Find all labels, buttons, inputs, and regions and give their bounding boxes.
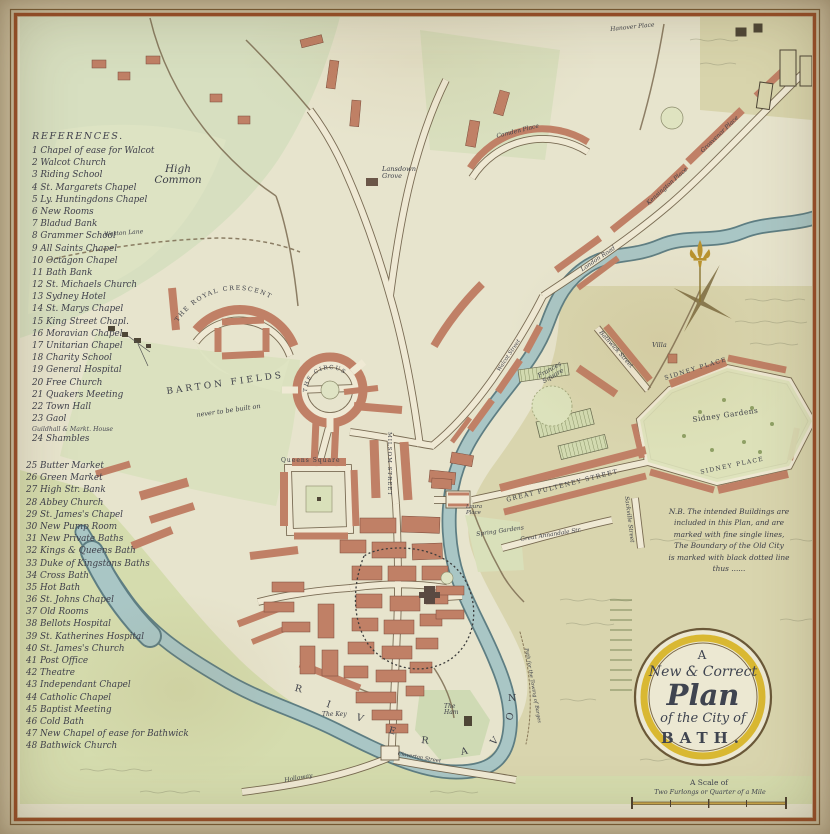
reference-item: 6 New Rooms — [32, 207, 154, 219]
reference-item: 47 New Chapel of ease for Bathwick — [26, 729, 189, 741]
references-list-1: REFERENCES. 1 Chapel of ease for Walcot … — [32, 131, 154, 446]
reference-item: 35 Hot Bath — [26, 583, 189, 595]
reference-item: 15 King Street Chapl. — [32, 317, 154, 329]
reference-item: 26 Green Market — [26, 473, 189, 485]
reference-item: 22 Town Hall — [32, 402, 154, 414]
reference-item: 25 Butter Market — [26, 461, 189, 473]
reference-item: 24 Shambles — [32, 434, 154, 446]
reference-item: 43 Independant Chapel — [26, 680, 189, 692]
reference-item: 2 Walcot Church — [32, 158, 154, 170]
reference-item: 28 Abbey Church — [26, 498, 189, 510]
grosvenor-garden — [661, 107, 683, 129]
references-title: REFERENCES. — [32, 131, 154, 146]
reference-item: 3 Riding School — [32, 170, 154, 182]
old-bridge — [381, 746, 399, 760]
reference-item: 4 St. Margarets Chapel — [32, 183, 154, 195]
reference-item: 20 Free Church — [32, 378, 154, 390]
queen-square-obelisk — [317, 497, 321, 501]
reference-item: 37 Old Rooms — [26, 607, 189, 619]
reference-item: 32 Kings & Queens Bath — [26, 546, 189, 558]
reference-item: 11 Bath Bank — [32, 268, 154, 280]
reference-item: 36 St. Johns Chapel — [26, 595, 189, 607]
reference-item: 40 St. James's Church — [26, 644, 189, 656]
reference-item: 44 Catholic Chapel — [26, 693, 189, 705]
reference-item: 33 Duke of Kingstons Baths — [26, 559, 189, 571]
reference-item: 5 Ly. Huntingdons Chapel — [32, 195, 154, 207]
references-list-2: 25 Butter Market 26 Green Market 27 High… — [26, 461, 189, 754]
reference-item: 46 Cold Bath — [26, 717, 189, 729]
reference-item: 13 Sydney Hotel — [32, 292, 154, 304]
reference-item: 9 All Saints Chapel — [32, 244, 154, 256]
reference-item: 34 Cross Bath — [26, 571, 189, 583]
reference-item: 27 High Str. Bank — [26, 485, 189, 497]
reference-item: 10 Octagon Chapel — [32, 256, 154, 268]
reference-item: 41 Post Office — [26, 656, 189, 668]
orange-grove — [441, 572, 453, 584]
milsom-west — [374, 440, 376, 498]
reference-item: 19 General Hospital — [32, 365, 154, 377]
ham-house — [464, 716, 472, 726]
reference-item: 23 Gaol — [32, 414, 154, 426]
circus-garden — [321, 381, 339, 399]
reference-item: 30 New Pump Room — [26, 522, 189, 534]
reference-item: 48 Bathwick Church — [26, 741, 189, 753]
cartouche-ring — [635, 629, 771, 765]
reference-item: 16 Moravian Chapel — [32, 329, 154, 341]
reference-item: 18 Charity School — [32, 353, 154, 365]
reference-item: 14 St. Marys Chapel — [32, 304, 154, 316]
reference-item: 21 Quakers Meeting — [32, 390, 154, 402]
reference-item-note: Guildhall & Markt. House — [32, 426, 154, 434]
reference-item: 39 St. Katherines Hospital — [26, 632, 189, 644]
reference-item: 8 Grammer School — [32, 231, 154, 243]
reference-item: 45 Baptist Meeting — [26, 705, 189, 717]
reference-item: 7 Bladud Bank — [32, 219, 154, 231]
antique-map-of-bath: THE ROYAL CRESCENT THE CIRCUS REFERENCES… — [0, 0, 830, 834]
lansdown-grove-house — [366, 178, 378, 186]
reference-item: 29 St. James's Chapel — [26, 510, 189, 522]
reference-item: 31 New Private Baths — [26, 534, 189, 546]
reference-item: 42 Theatre — [26, 668, 189, 680]
villa-house — [668, 354, 677, 363]
reference-item: 38 Bellots Hospital — [26, 619, 189, 631]
reference-item: 1 Chapel of ease for Walcot — [32, 146, 154, 158]
reference-item: 12 St. Michaels Church — [32, 280, 154, 292]
milsom-east — [404, 442, 408, 500]
reference-item: 17 Unitarian Chapel — [32, 341, 154, 353]
frances-square-garden — [532, 386, 572, 426]
